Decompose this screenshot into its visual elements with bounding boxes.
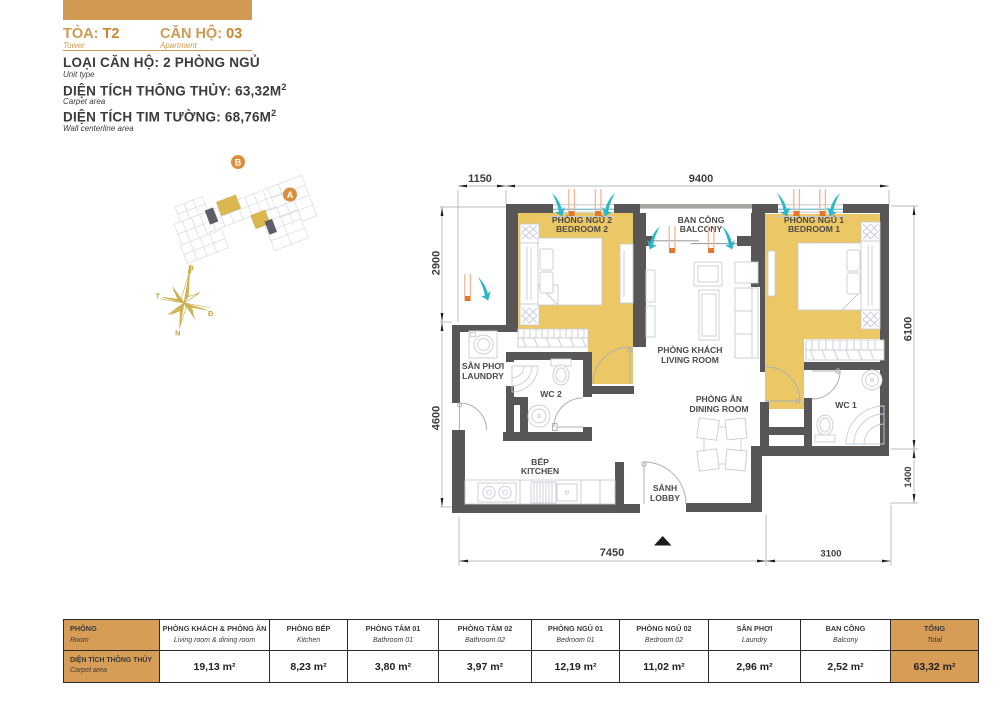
svg-text:SÂN PHƠI: SÂN PHƠI <box>462 360 504 371</box>
svg-text:BALCONY: BALCONY <box>680 224 723 234</box>
svg-text:4600: 4600 <box>431 406 443 430</box>
svg-text:BEDROOM 1: BEDROOM 1 <box>788 224 840 234</box>
svg-text:PHÒNG ĂN: PHÒNG ĂN <box>696 393 742 404</box>
svg-text:LOBBY: LOBBY <box>650 493 680 503</box>
svg-text:1150: 1150 <box>468 173 492 185</box>
svg-text:LIVING ROOM: LIVING ROOM <box>661 355 719 365</box>
svg-text:WC 1: WC 1 <box>835 400 857 410</box>
svg-text:1400: 1400 <box>903 466 914 487</box>
svg-text:N: N <box>175 329 180 338</box>
svg-text:A: A <box>287 190 294 200</box>
svg-text:B: B <box>188 264 194 273</box>
svg-text:Đ: Đ <box>208 309 214 318</box>
svg-text:LAUNDRY: LAUNDRY <box>462 371 504 381</box>
svg-text:PHÒNG KHÁCH: PHÒNG KHÁCH <box>658 344 723 355</box>
svg-text:3100: 3100 <box>820 549 841 560</box>
svg-text:KITCHEN: KITCHEN <box>521 466 559 476</box>
svg-text:2900: 2900 <box>431 251 443 275</box>
svg-text:WC 2: WC 2 <box>540 389 562 399</box>
svg-text:B: B <box>235 158 242 168</box>
svg-text:DINING ROOM: DINING ROOM <box>689 404 748 414</box>
svg-text:T: T <box>155 291 160 300</box>
svg-text:7450: 7450 <box>600 547 624 559</box>
svg-text:9400: 9400 <box>689 173 713 185</box>
svg-text:6100: 6100 <box>903 317 915 341</box>
svg-text:BEDROOM 2: BEDROOM 2 <box>556 224 608 234</box>
svg-text:SẢNH: SẢNH <box>653 482 677 493</box>
